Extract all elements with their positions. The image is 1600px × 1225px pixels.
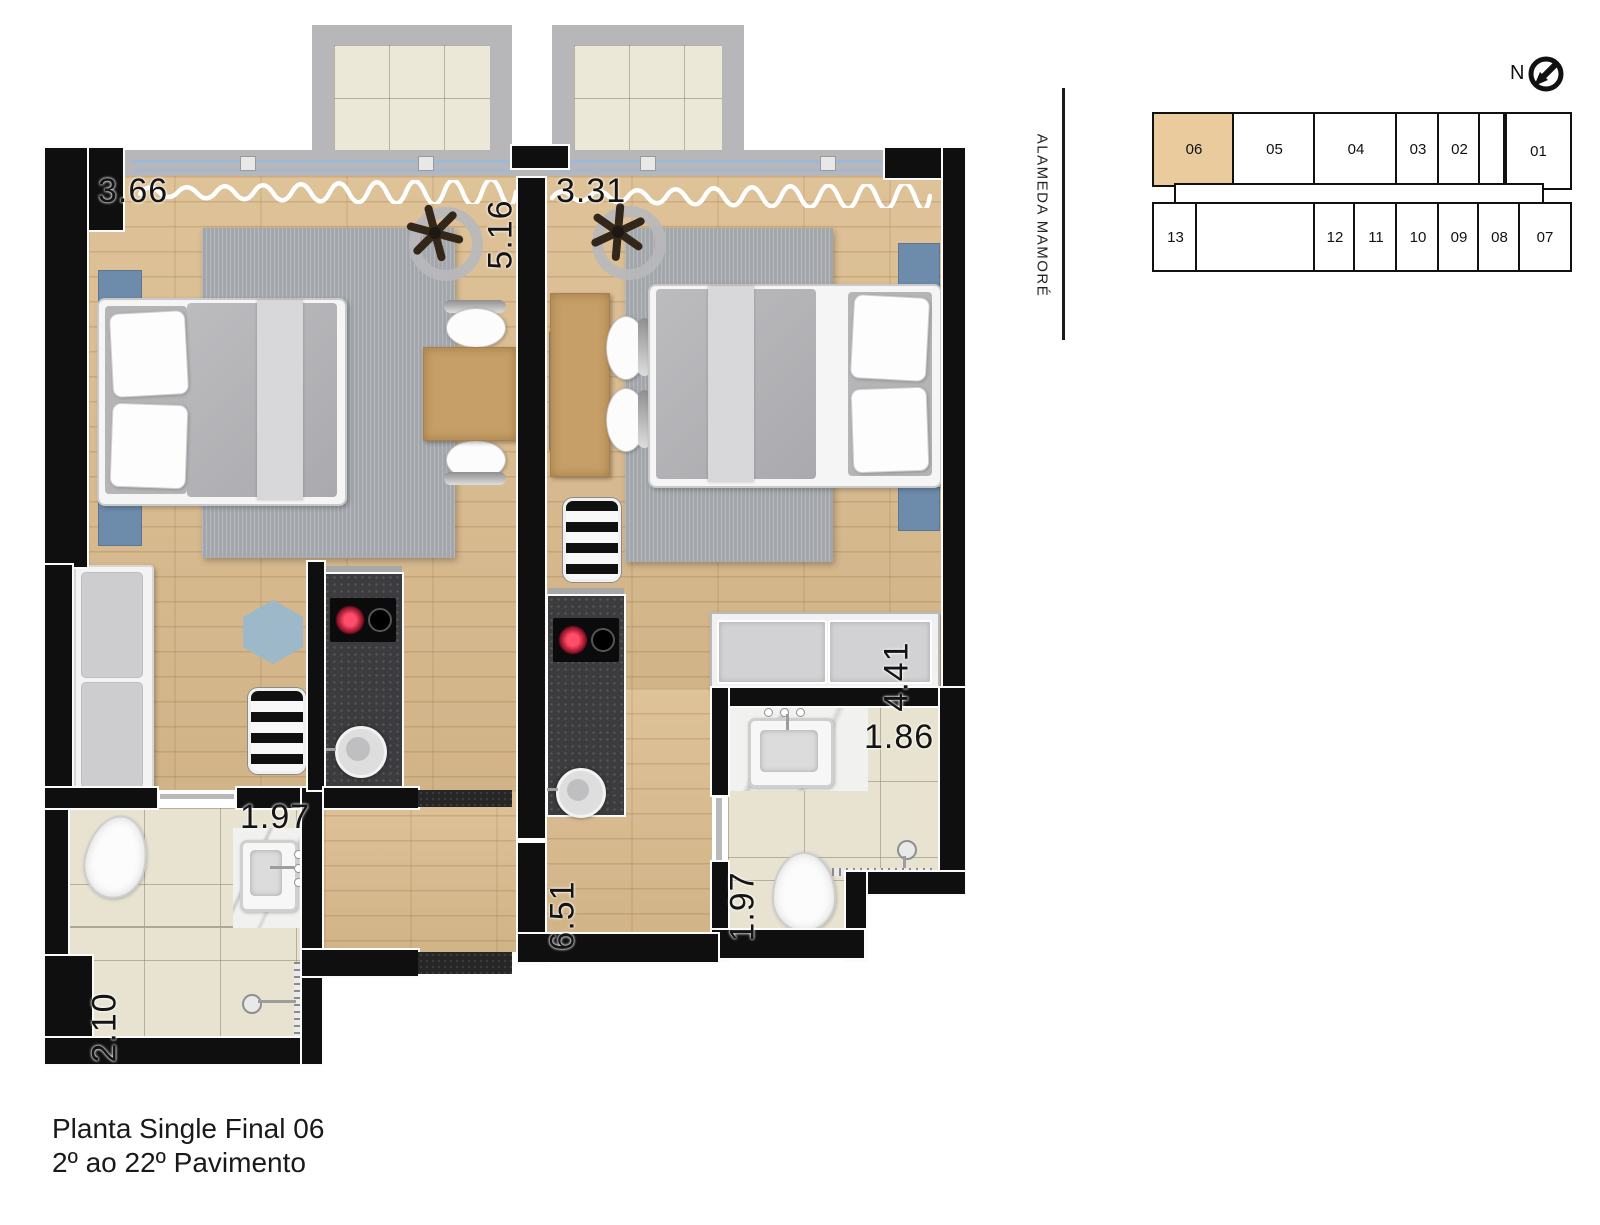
keyplan-unit-03: 03 — [1395, 112, 1441, 187]
nightstand-right-bottom — [898, 487, 940, 531]
door-leaf-left-bath — [160, 794, 234, 799]
shower-head-right — [897, 840, 917, 860]
kitchen-counter-left — [324, 574, 402, 792]
wall — [712, 688, 965, 706]
sink-right — [556, 768, 606, 818]
window-mullion — [640, 156, 656, 171]
nightstand-right-top — [898, 243, 940, 290]
shower-pipe-left — [258, 1000, 296, 1003]
dim-right-bath-width: 1.86 — [864, 718, 934, 757]
wall — [940, 688, 965, 880]
plan-title: Planta Single Final 06 2º ao 22º Pavimen… — [52, 1112, 324, 1180]
keyplan-common-area — [1195, 202, 1317, 272]
keyplan-unit-08: 08 — [1477, 202, 1522, 272]
dim-left-unit-depth: 5.16 — [480, 178, 522, 290]
balcony-left-floor — [334, 45, 490, 153]
ceiling-fan-left-blades — [409, 207, 461, 259]
window-mullion — [820, 156, 836, 171]
wall — [45, 565, 72, 790]
ceiling-fan-right-blades — [592, 206, 644, 258]
sofa-left — [74, 565, 154, 797]
nightstand-left-bottom — [98, 500, 142, 546]
plan-title-line2: 2º ao 22º Pavimento — [52, 1146, 324, 1180]
bed-right-pillow — [851, 387, 930, 474]
faucet-knob — [796, 708, 805, 717]
dim-left-bath-width: 1.97 — [240, 798, 310, 837]
keyplan-unit-07: 07 — [1518, 202, 1572, 272]
dim-right-bath-depth: 1.97 — [722, 852, 764, 960]
dining-table-right — [550, 293, 610, 477]
vanity-sink-left — [240, 840, 298, 912]
faucet-knob — [764, 708, 773, 717]
wall — [712, 688, 728, 795]
cooktop-left — [330, 598, 396, 642]
keyplan-unit-05: 05 — [1232, 112, 1317, 187]
bed-left — [97, 298, 347, 506]
keyplan-unit-13: 13 — [1152, 202, 1199, 272]
wall-party — [518, 178, 545, 964]
bed-left-runner — [257, 300, 303, 500]
window-right-glass — [548, 160, 930, 163]
keyplan-unit-10: 10 — [1395, 202, 1441, 272]
sink-left — [335, 726, 387, 778]
chair-back — [444, 472, 506, 485]
dim-right-hall-depth: 6.51 — [542, 858, 584, 973]
faucet-spout-left — [270, 866, 294, 869]
wall — [45, 148, 87, 567]
keyplan-unit-12: 12 — [1313, 202, 1357, 272]
door-leaf-right-bath — [716, 798, 722, 860]
window-mullion — [240, 156, 256, 171]
faucet-spout-right — [786, 714, 789, 730]
bench-right — [563, 498, 621, 582]
entrance-threshold-left-unit — [418, 952, 512, 974]
dining-table-left — [423, 347, 517, 441]
keyplan-unit-02: 02 — [1437, 112, 1482, 187]
window-left-glass2 — [132, 169, 512, 172]
vanity-sink-right — [748, 718, 834, 788]
wall — [943, 148, 965, 693]
counter-left-edge — [324, 566, 402, 574]
door-threshold-vestibule — [418, 790, 512, 807]
window-left-glass — [132, 160, 512, 163]
keyplan-unit-11: 11 — [1353, 202, 1399, 272]
floor-left-vestibule — [324, 790, 518, 952]
street-line — [1062, 88, 1065, 340]
wall — [308, 562, 324, 790]
counter-right-edge — [548, 588, 624, 596]
dim-right-wardrobe: 4.41 — [876, 620, 918, 732]
dim-left-bath-depth: 2.10 — [84, 972, 126, 1082]
curtain-left — [138, 180, 518, 204]
dim-right-unit-width: 3.31 — [556, 172, 626, 211]
north-label: N — [1510, 62, 1524, 85]
bed-left-pillow — [109, 310, 189, 398]
street-name: ALAMEDA MAMORÉ — [1024, 100, 1060, 330]
plan-title-line1: Planta Single Final 06 — [52, 1112, 324, 1146]
keyplan-unit-06: 06 — [1152, 112, 1236, 187]
window-mullion — [418, 156, 434, 171]
wall-column — [512, 146, 568, 168]
bed-right-pillow — [850, 294, 930, 382]
keyplan-unit-01: 01 — [1505, 112, 1572, 190]
floorplan-sheet: 3.66 5.16 3.31 4.41 1.86 1.97 1.97 2.10 … — [0, 0, 1600, 1225]
dim-left-unit-width: 3.66 — [98, 172, 168, 211]
wall — [324, 788, 418, 808]
bed-right-runner — [708, 286, 754, 482]
bench-left — [248, 688, 306, 774]
cooktop-right — [553, 618, 619, 662]
balcony-right-floor — [574, 45, 722, 153]
bed-left-pillow — [110, 403, 189, 490]
keyplan-unit-09: 09 — [1437, 202, 1481, 272]
shower-head-left — [242, 994, 262, 1014]
chair-left-top — [446, 308, 506, 348]
keyplan-unit-04: 04 — [1313, 112, 1399, 187]
wall — [45, 788, 157, 808]
north-arrow-icon — [1526, 54, 1566, 94]
bed-right — [648, 284, 942, 488]
wall — [302, 950, 418, 976]
kitchen-counter-right — [548, 596, 624, 815]
wall-joint — [516, 838, 547, 843]
